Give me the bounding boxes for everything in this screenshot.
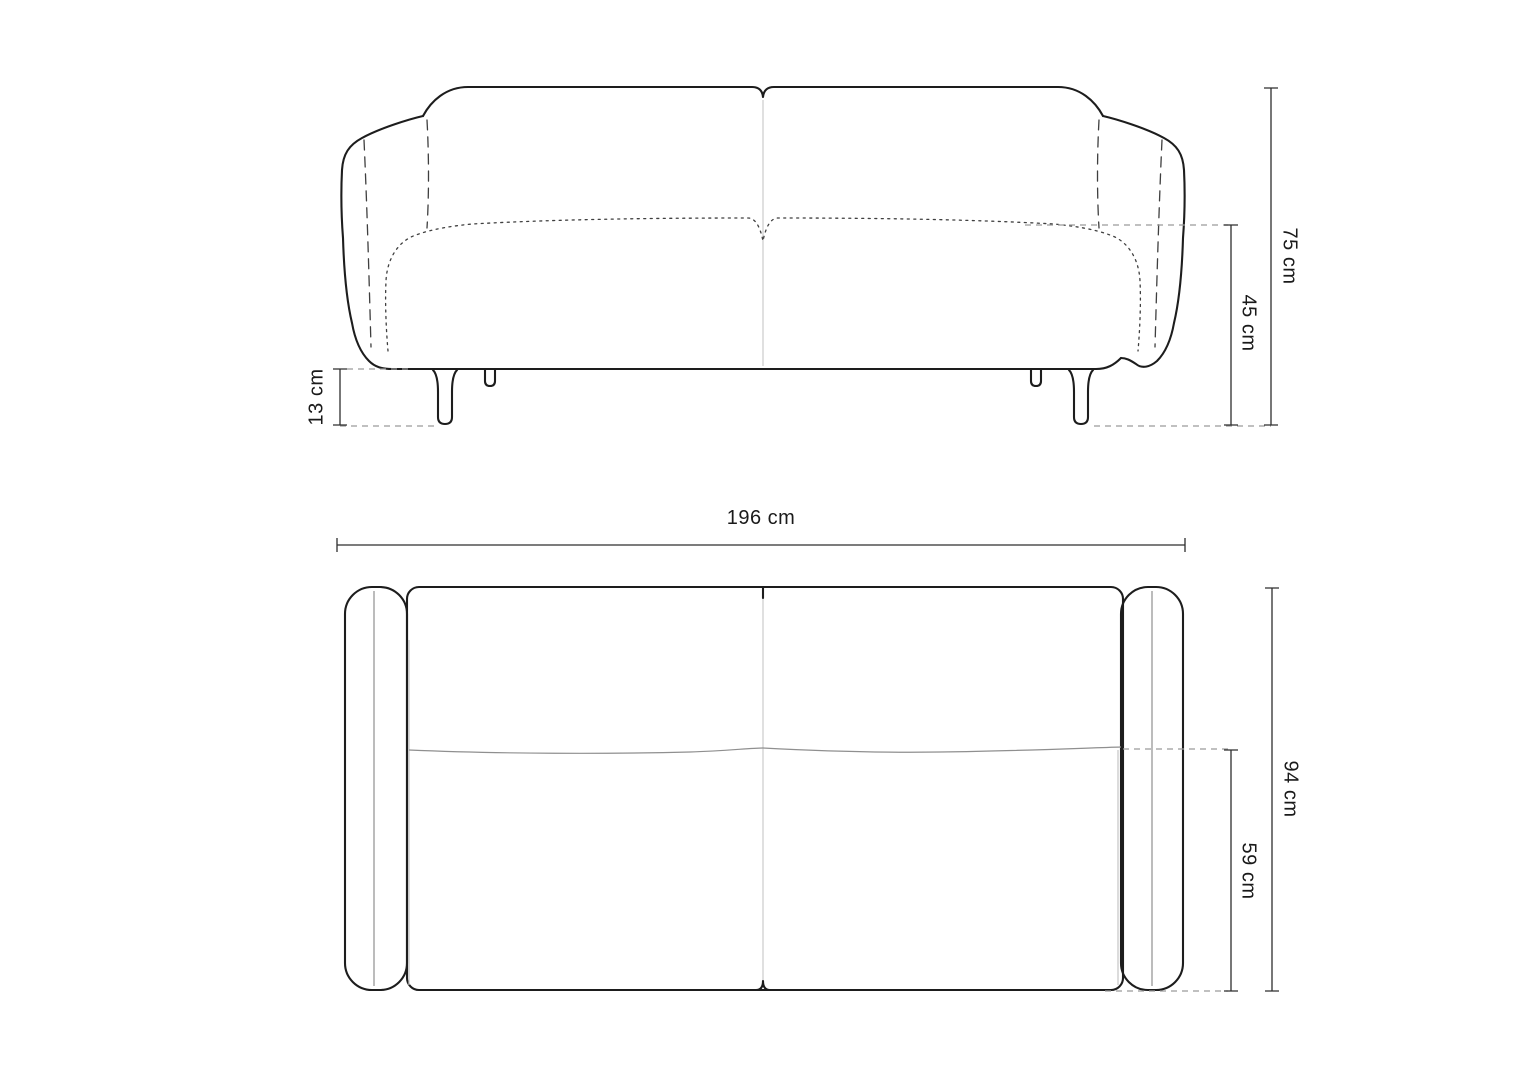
dimension-label-59: 59 cm (1238, 843, 1260, 900)
front-left-backrest-seam (427, 120, 429, 228)
dimension-line-196 (337, 538, 1185, 552)
top-seat-depth-dimension: 59 cm (1224, 750, 1260, 991)
dimension-label-75: 75 cm (1279, 228, 1301, 285)
sofa-dimension-diagram: 75 cm 45 cm 13 cm 196 cm (0, 0, 1527, 1080)
top-depth-dimension: 94 cm (1265, 588, 1302, 991)
top-center-seam-bottom-notch (756, 981, 770, 990)
front-left-armrest-fold-line (364, 140, 371, 347)
top-view: 196 cm 94 cm 59 cm (337, 507, 1302, 991)
dimension-label-94: 94 cm (1280, 761, 1302, 818)
dimension-line-45 (1224, 225, 1238, 425)
front-right-armrest (1103, 116, 1185, 367)
top-body (407, 587, 1123, 990)
front-right-armrest-fold-line (1155, 140, 1162, 347)
front-view: 75 cm 45 cm 13 cm (305, 87, 1300, 426)
dimension-label-45: 45 cm (1238, 295, 1260, 352)
dimension-line-75 (1264, 88, 1278, 425)
front-leg-height-dimension: 13 cm (305, 369, 347, 426)
top-backrest-seam (409, 747, 1121, 753)
top-width-dimension: 196 cm (337, 507, 1185, 552)
dimension-line-59 (1224, 750, 1238, 991)
front-right-backrest-seam (1098, 120, 1100, 228)
dimension-line-13 (333, 369, 347, 425)
dimension-label-13: 13 cm (305, 369, 327, 426)
front-right-back-leg (1031, 370, 1041, 386)
front-left-front-leg (433, 370, 457, 424)
front-left-armrest (341, 116, 423, 369)
front-left-back-leg (485, 370, 495, 386)
top-left-armrest (345, 587, 407, 990)
dimension-label-196: 196 cm (727, 507, 796, 529)
front-body-bottom-edge (409, 358, 1121, 369)
front-total-height-dimension: 75 cm (1264, 88, 1301, 425)
diagram-canvas: 75 cm 45 cm 13 cm 196 cm (0, 0, 1527, 1080)
dimension-line-94 (1265, 588, 1279, 991)
front-right-front-leg (1069, 370, 1093, 424)
front-seat-height-dimension: 45 cm (1224, 225, 1260, 425)
